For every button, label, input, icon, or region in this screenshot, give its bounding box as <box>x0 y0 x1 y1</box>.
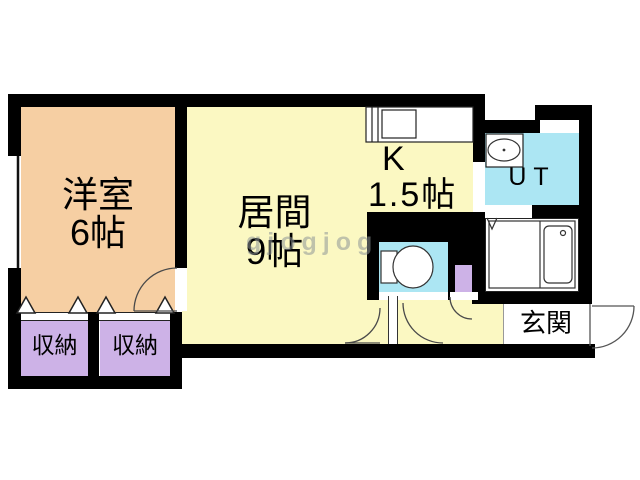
toilet-door-arc <box>450 297 472 319</box>
room-name-text: 玄関 <box>520 308 572 338</box>
watermark-text: gjogjog <box>246 228 406 257</box>
entrance-label: 玄関 <box>503 310 589 337</box>
entrance-door-arc <box>590 304 634 348</box>
western-door-arc <box>134 268 177 311</box>
kitchen-sink <box>382 110 416 138</box>
floor-plan: 洋室 6帖 居間 9帖 K 1.5帖 UT 収納 収納 玄関 gjogjog <box>0 0 640 480</box>
room-name-text: 収納 <box>32 332 78 358</box>
room-name-text: UT <box>508 163 555 191</box>
room-name-text: 収納 <box>112 332 158 358</box>
kitchen-counter <box>366 107 473 142</box>
bathtub <box>487 218 575 288</box>
storage-right-label: 収納 <box>100 333 170 357</box>
hallway-door-arcs <box>345 297 472 343</box>
storage-left-label: 収納 <box>21 333 88 357</box>
utility-room-label: UT <box>485 164 579 190</box>
